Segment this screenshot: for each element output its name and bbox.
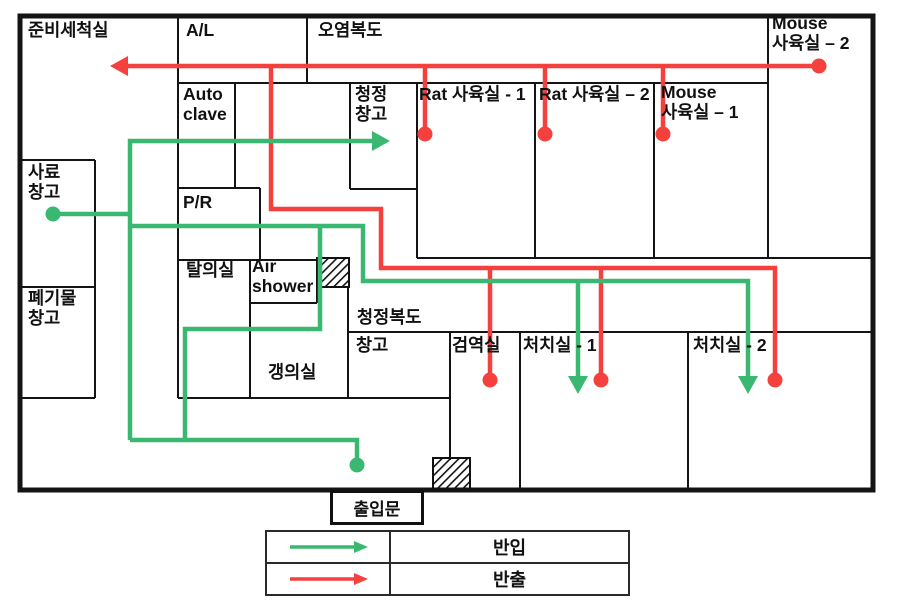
carry-out-origin-mouse2 [812, 59, 827, 74]
carry-out-arrowhead [110, 56, 128, 76]
room-label-dirty-corridor: 오염복도 [318, 21, 382, 41]
room-label-treatment-1: 처치실 - 1 [523, 336, 597, 356]
room-label-storage: 창고 [356, 336, 388, 356]
room-label-undressing-room: 탈의실 [186, 261, 234, 281]
carry-in-origin-entrance [350, 458, 365, 473]
room-label-mouse-room-2: Mouse 사육실 – 2 [772, 14, 876, 54]
legend-row-carry-in: 반입 [267, 532, 628, 564]
room-label-waste-storage: 폐기물 창고 [28, 289, 94, 329]
carry-in-origin-feed-storage [46, 207, 61, 222]
room-label-pass-room: P/R [183, 193, 212, 213]
room-label-mouse-room-1: Mouse 사육실 – 1 [661, 83, 761, 123]
room-label-prep-wash: 준비세척실 [28, 21, 109, 41]
room-label-autoclave: Auto clave [183, 85, 247, 125]
room-label-rat-room-2: Rat 사육실 – 2 [539, 85, 650, 105]
carry-out-origin-quarantine [483, 373, 498, 388]
carry-out-origin-treatment1 [594, 373, 609, 388]
carry-out-origin-treatment2 [768, 373, 783, 388]
room-label-dressing-room: 갱의실 [268, 363, 316, 383]
pass-box-hatch-entrance [433, 458, 470, 489]
room-label-treatment-2: 처치실 - 2 [693, 336, 767, 356]
entrance-door-label: 출입문 [354, 495, 401, 520]
room-label-quarantine: 검역실 [452, 336, 500, 356]
carry-in-arrowhead-clean-storage [372, 131, 390, 151]
room-label-clean-storage: 청정 창고 [355, 85, 403, 125]
legend-row-carry-out: 반출 [267, 564, 628, 594]
room-label-rat-room-1: Rat 사육실 - 1 [419, 85, 526, 105]
carry-in-arrowhead-treatment1 [568, 376, 588, 394]
carry-out-origin-rat2 [538, 127, 553, 142]
legend: 반입 반출 [265, 530, 630, 596]
carry-out-origin-mouse1 [656, 127, 671, 142]
legend-carry-in-label: 반입 [391, 532, 628, 562]
carry-in-arrowhead-treatment2 [738, 376, 758, 394]
facility-floor-plan: 준비세척실 A/L 오염복도 Mouse 사육실 – 2 Auto clave … [0, 0, 900, 605]
carry-out-origin-rat1 [418, 127, 433, 142]
room-label-air-shower: Air shower [252, 257, 326, 297]
carry-out-arrow-icon [267, 564, 391, 594]
legend-carry-out-label: 반출 [391, 564, 628, 594]
carry-in-arrow-icon [267, 532, 391, 562]
room-label-air-lock: A/L [186, 21, 214, 41]
room-label-feed-storage: 사료 창고 [28, 163, 76, 203]
carry-in-route [46, 131, 759, 473]
room-label-clean-corridor: 청정복도 [357, 308, 421, 328]
entrance-door: 출입문 [330, 490, 424, 525]
